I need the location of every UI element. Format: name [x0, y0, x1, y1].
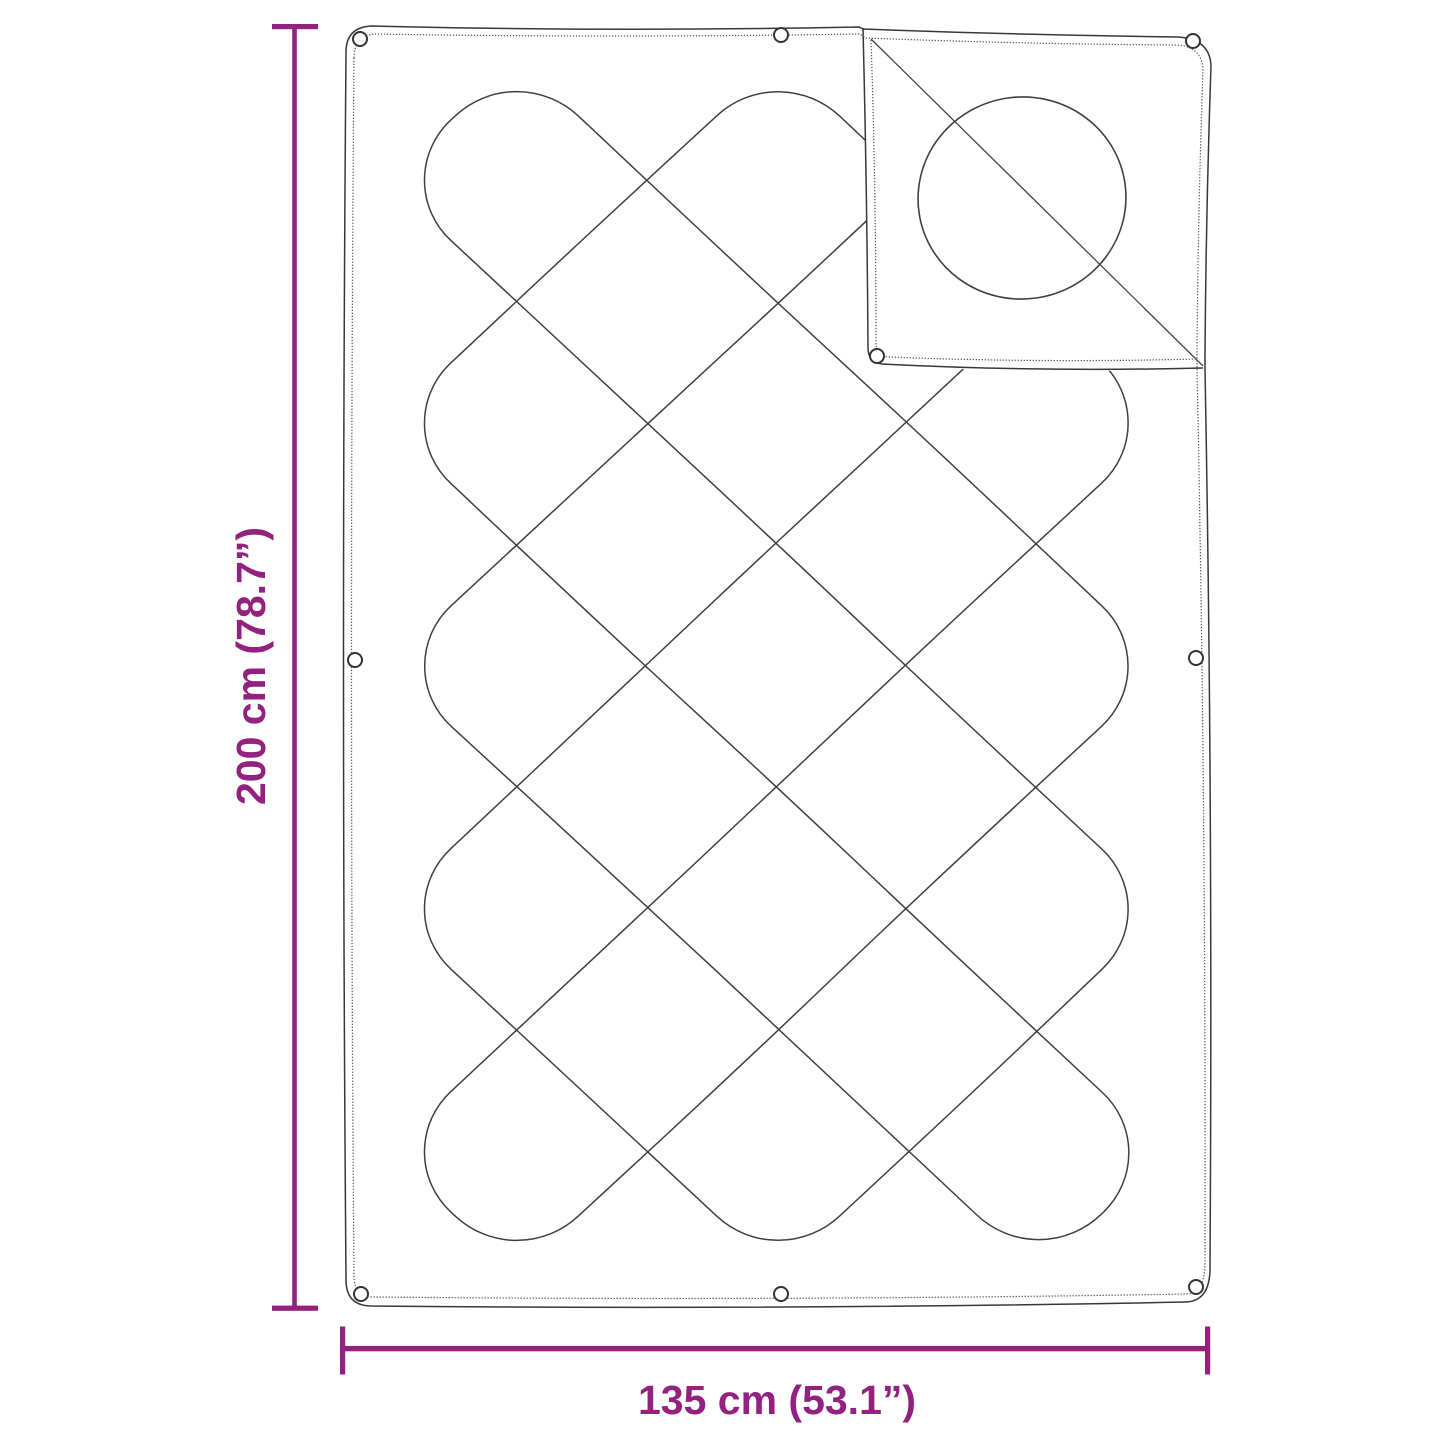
svg-text:135 cm (53.1”): 135 cm (53.1”) — [638, 1377, 916, 1423]
svg-text:200 cm (78.7”): 200 cm (78.7”) — [228, 527, 274, 805]
